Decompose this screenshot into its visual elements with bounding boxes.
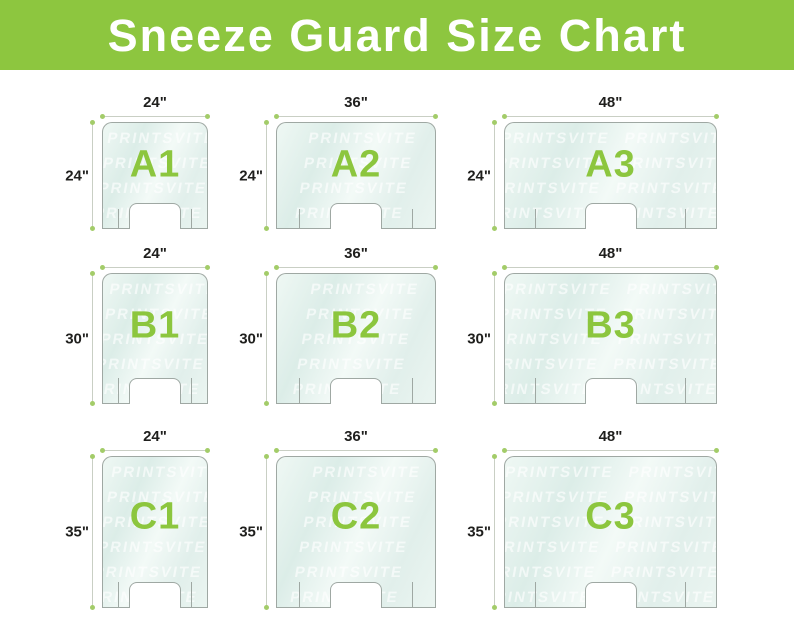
dimension-dot-icon [714, 114, 719, 119]
row-a: 24" 24" PRINTSVITE PRINTSVITE PRINTSVITE… [0, 94, 794, 229]
sneeze-guard-panel: PRINTSVITE PRINTSVITE PRINTSVITE PRINTSV… [504, 273, 717, 404]
dimension-dot-icon [205, 114, 210, 119]
width-dimension: 48" [504, 428, 717, 456]
pass-through-notch [330, 378, 382, 404]
dimension-line-vertical [494, 456, 495, 608]
dimension-line-horizontal [102, 267, 208, 268]
pass-through-notch [330, 203, 382, 229]
dimension-dot-icon [90, 454, 95, 459]
mounting-slot [118, 582, 119, 608]
width-label: 36" [276, 245, 436, 262]
dimension-dot-icon [502, 114, 507, 119]
mounting-slot [299, 582, 300, 608]
dimension-dot-icon [205, 265, 210, 270]
dimension-dot-icon [492, 401, 497, 406]
sneeze-guard-panel: PRINTSVITE PRINTSVITE PRINTSVITE PRINTSV… [276, 456, 436, 608]
pass-through-notch [330, 582, 382, 608]
row-c: 24" 35" PRINTSVITE PRINTSVITE PRINTSVITE… [0, 428, 794, 608]
dimension-line-horizontal [504, 267, 717, 268]
dimension-line-vertical [494, 122, 495, 229]
pass-through-notch [129, 582, 181, 608]
panel-bottom-edge [103, 607, 129, 608]
dimension-line-horizontal [276, 267, 436, 268]
width-dimension: 36" [276, 245, 436, 273]
panel-bottom-edge [382, 607, 435, 608]
dimension-dot-icon [264, 454, 269, 459]
sneeze-guard-panel: PRINTSVITE PRINTSVITE PRINTSVITE PRINTSV… [504, 456, 717, 608]
dimension-dot-icon [264, 226, 269, 231]
panel-cell-c1: 24" 35" PRINTSVITE PRINTSVITE PRINTSVITE… [50, 428, 208, 608]
dimension-dot-icon [264, 401, 269, 406]
panel-bottom-edge [103, 403, 129, 404]
dimension-dot-icon [274, 448, 279, 453]
width-label: 24" [102, 428, 208, 445]
dimension-dot-icon [492, 120, 497, 125]
panel-size-label: B1 [130, 305, 181, 348]
panel-bottom-edge [637, 403, 717, 404]
width-label: 36" [276, 428, 436, 445]
dimension-dot-icon [90, 271, 95, 276]
height-label: 30" [467, 330, 491, 347]
dimension-line-vertical [266, 456, 267, 608]
panel-size-label: A2 [331, 144, 382, 187]
width-label: 48" [504, 245, 717, 262]
mounting-slot [685, 378, 686, 404]
page-title: Sneeze Guard Size Chart [108, 13, 687, 58]
height-dimension: 35" [224, 456, 276, 608]
mounting-slot [191, 378, 192, 404]
width-label: 48" [504, 428, 717, 445]
width-dimension: 24" [102, 428, 208, 456]
dimension-line-horizontal [504, 116, 717, 117]
pass-through-notch [585, 582, 637, 608]
dimension-line-vertical [92, 273, 93, 404]
row-b: 24" 30" PRINTSVITE PRINTSVITE PRINTSVITE… [0, 245, 794, 404]
panel-size-label: C1 [130, 496, 181, 539]
width-label: 36" [276, 94, 436, 111]
dimension-dot-icon [492, 226, 497, 231]
panel-bottom-edge [382, 403, 435, 404]
sneeze-guard-panel: PRINTSVITE PRINTSVITE PRINTSVITE PRINTSV… [102, 273, 208, 404]
mounting-slot [412, 582, 413, 608]
height-dimension: 35" [452, 456, 504, 608]
size-chart-page: Sneeze Guard Size Chart 24" 24" [0, 0, 794, 635]
dimension-dot-icon [264, 120, 269, 125]
mounting-slot [535, 582, 536, 608]
dimension-dot-icon [274, 114, 279, 119]
dimension-dot-icon [100, 448, 105, 453]
dimension-dot-icon [100, 114, 105, 119]
height-label: 35" [467, 524, 491, 541]
dimension-dot-icon [492, 454, 497, 459]
sneeze-guard-panel: PRINTSVITE PRINTSVITE PRINTSVITE PRINTSV… [504, 122, 717, 229]
dimension-line-horizontal [276, 450, 436, 451]
dimension-line-horizontal [102, 116, 208, 117]
dimension-dot-icon [433, 265, 438, 270]
width-label: 24" [102, 245, 208, 262]
panel-bottom-edge [181, 403, 207, 404]
mounting-slot [535, 378, 536, 404]
dimension-dot-icon [492, 605, 497, 610]
panel-bottom-edge [277, 607, 330, 608]
width-dimension: 24" [102, 94, 208, 122]
panel-cell-c3: 48" 35" PRINTSVITE PRINTSVITE PRINTSVITE… [452, 428, 717, 608]
mounting-slot [118, 378, 119, 404]
panel-cell-b1: 24" 30" PRINTSVITE PRINTSVITE PRINTSVITE… [50, 245, 208, 404]
dimension-line-horizontal [276, 116, 436, 117]
dimension-line-vertical [266, 273, 267, 404]
sneeze-guard-panel: PRINTSVITE PRINTSVITE PRINTSVITE PRINTSV… [102, 456, 208, 608]
dimension-line-vertical [494, 273, 495, 404]
mounting-slot [685, 209, 686, 229]
dimension-dot-icon [205, 448, 210, 453]
height-dimension: 30" [50, 273, 102, 404]
mounting-slot [118, 209, 119, 229]
height-label: 35" [239, 524, 263, 541]
height-label: 24" [65, 167, 89, 184]
sneeze-guard-panel: PRINTSVITE PRINTSVITE PRINTSVITE PRINTSV… [276, 273, 436, 404]
height-dimension: 24" [452, 122, 504, 229]
panel-bottom-edge [505, 228, 585, 229]
width-dimension: 36" [276, 94, 436, 122]
height-dimension: 30" [224, 273, 276, 404]
panel-bottom-edge [505, 607, 585, 608]
panel-size-label: A3 [585, 144, 636, 187]
dimension-dot-icon [90, 605, 95, 610]
panel-cell-b2: 36" 30" PRINTSVITE PRINTSVITE PRINTSVITE… [224, 245, 436, 404]
dimension-line-horizontal [504, 450, 717, 451]
dimension-dot-icon [714, 448, 719, 453]
dimension-dot-icon [502, 265, 507, 270]
dimension-dot-icon [433, 448, 438, 453]
mounting-slot [685, 582, 686, 608]
panel-cell-a1: 24" 24" PRINTSVITE PRINTSVITE PRINTSVITE… [50, 94, 208, 229]
panel-bottom-edge [277, 228, 330, 229]
panel-cell-b3: 48" 30" PRINTSVITE PRINTSVITE PRINTSVITE… [452, 245, 717, 404]
panel-cell-a2: 36" 24" PRINTSVITE PRINTSVITE PRINTSVITE… [224, 94, 436, 229]
width-dimension: 36" [276, 428, 436, 456]
height-label: 30" [239, 330, 263, 347]
dimension-dot-icon [264, 605, 269, 610]
height-dimension: 24" [50, 122, 102, 229]
pass-through-notch [585, 378, 637, 404]
mounting-slot [191, 582, 192, 608]
sneeze-guard-panel: PRINTSVITE PRINTSVITE PRINTSVITE PRINTSV… [276, 122, 436, 229]
dimension-dot-icon [264, 271, 269, 276]
height-label: 35" [65, 524, 89, 541]
mounting-slot [535, 209, 536, 229]
panel-cell-c2: 36" 35" PRINTSVITE PRINTSVITE PRINTSVITE… [224, 428, 436, 608]
width-label: 48" [504, 94, 717, 111]
height-dimension: 35" [50, 456, 102, 608]
pass-through-notch [129, 378, 181, 404]
dimension-dot-icon [274, 265, 279, 270]
width-dimension: 24" [102, 245, 208, 273]
height-label: 24" [467, 167, 491, 184]
dimension-dot-icon [90, 120, 95, 125]
panel-size-label: B2 [331, 305, 382, 348]
panel-bottom-edge [382, 228, 435, 229]
mounting-slot [299, 378, 300, 404]
panel-size-label: B3 [585, 305, 636, 348]
width-label: 24" [102, 94, 208, 111]
mounting-slot [191, 209, 192, 229]
mounting-slot [299, 209, 300, 229]
dimension-dot-icon [90, 226, 95, 231]
panel-bottom-edge [637, 607, 717, 608]
height-dimension: 24" [224, 122, 276, 229]
height-label: 30" [65, 330, 89, 347]
dimension-dot-icon [433, 114, 438, 119]
dimension-line-horizontal [102, 450, 208, 451]
panel-bottom-edge [103, 228, 129, 229]
sneeze-guard-panel: PRINTSVITE PRINTSVITE PRINTSVITE PRINTSV… [102, 122, 208, 229]
pass-through-notch [585, 203, 637, 229]
dimension-line-vertical [92, 456, 93, 608]
mounting-slot [412, 209, 413, 229]
dimension-line-vertical [266, 122, 267, 229]
width-dimension: 48" [504, 245, 717, 273]
height-label: 24" [239, 167, 263, 184]
dimension-dot-icon [100, 265, 105, 270]
panel-bottom-edge [181, 607, 207, 608]
height-dimension: 30" [452, 273, 504, 404]
panel-size-label: C3 [585, 496, 636, 539]
panel-bottom-edge [505, 403, 585, 404]
width-dimension: 48" [504, 94, 717, 122]
panel-bottom-edge [637, 228, 717, 229]
pass-through-notch [129, 203, 181, 229]
dimension-line-vertical [92, 122, 93, 229]
panel-size-label: A1 [130, 144, 181, 187]
panel-bottom-edge [181, 228, 207, 229]
dimension-dot-icon [492, 271, 497, 276]
panel-cell-a3: 48" 24" PRINTSVITE PRINTSVITE PRINTSVITE… [452, 94, 717, 229]
dimension-dot-icon [502, 448, 507, 453]
panel-size-label: C2 [331, 496, 382, 539]
dimension-dot-icon [714, 265, 719, 270]
dimension-dot-icon [90, 401, 95, 406]
header-banner: Sneeze Guard Size Chart [0, 0, 794, 70]
panel-bottom-edge [277, 403, 330, 404]
mounting-slot [412, 378, 413, 404]
